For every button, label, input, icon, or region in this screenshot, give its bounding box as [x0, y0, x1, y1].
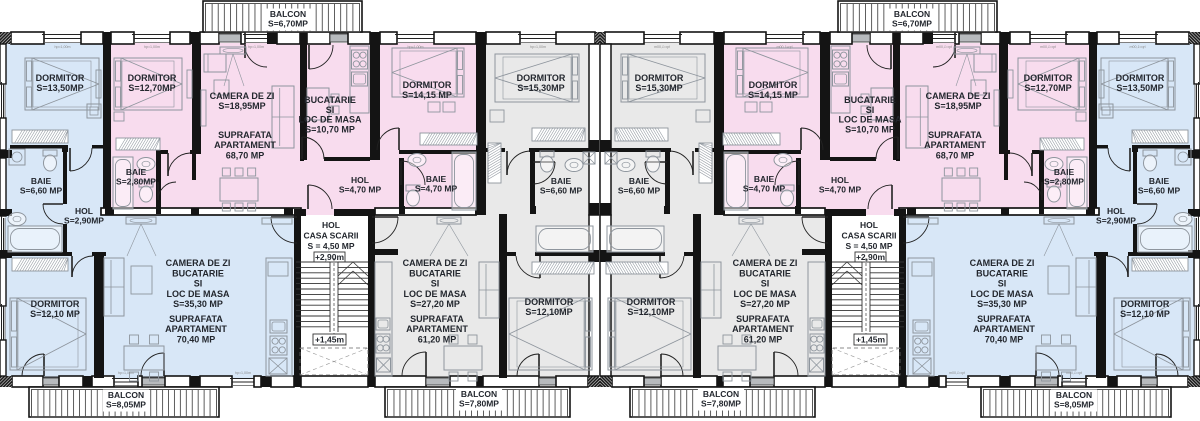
svg-text:hp=1,00m: hp=1,00m [248, 45, 264, 49]
svg-text:hp=1,00m: hp=1,00m [654, 45, 670, 49]
svg-text:S=6,70MP: S=6,70MP [892, 19, 932, 29]
svg-text:CASA SCARII: CASA SCARII [304, 231, 359, 241]
svg-text:CAMERA DE ZI: CAMERA DE ZI [166, 258, 231, 268]
svg-text:S=6,60 MP: S=6,60 MP [540, 186, 583, 196]
svg-text:S=12,10MP: S=12,10MP [525, 307, 572, 317]
svg-text:61,20 MP: 61,20 MP [744, 334, 783, 344]
svg-text:CAMERA DE ZI: CAMERA DE ZI [733, 258, 798, 268]
svg-text:S=4,70 MP: S=4,70 MP [819, 185, 862, 195]
svg-text:hp=1,00m: hp=1,00m [949, 371, 965, 375]
svg-text:LOC DE MASA: LOC DE MASA [299, 115, 363, 125]
svg-text:S = 4,50 MP: S = 4,50 MP [845, 241, 892, 251]
svg-text:LOC DE MASA: LOC DE MASA [839, 115, 903, 125]
svg-text:HOL: HOL [75, 206, 93, 216]
svg-text:S=4,70 MP: S=4,70 MP [743, 184, 786, 194]
svg-text:BALCON: BALCON [894, 9, 930, 19]
svg-text:S=2,90MP: S=2,90MP [64, 216, 104, 226]
svg-text:DORMITOR: DORMITOR [128, 73, 177, 83]
svg-text:DORMITOR: DORMITOR [1024, 73, 1073, 83]
svg-text:SI: SI [998, 279, 1007, 289]
svg-text:S=6,60 MP: S=6,60 MP [20, 186, 63, 196]
svg-text:APARTAMENT: APARTAMENT [165, 324, 227, 334]
svg-text:S=13,50MP: S=13,50MP [1116, 83, 1163, 93]
svg-text:S=12,10 MP: S=12,10 MP [1120, 309, 1170, 319]
svg-text:hp=1,00m: hp=1,00m [1040, 45, 1056, 49]
svg-text:CAMERA DE ZI: CAMERA DE ZI [926, 91, 991, 101]
svg-text:68,70 MP: 68,70 MP [226, 150, 265, 160]
svg-text:S=2,90MP: S=2,90MP [1096, 216, 1136, 226]
svg-text:S=10,70 MP: S=10,70 MP [845, 124, 895, 134]
svg-text:BAIE: BAIE [126, 167, 147, 177]
svg-text:APARTAMENT: APARTAMENT [973, 324, 1035, 334]
svg-text:S=12,70MP: S=12,70MP [1024, 83, 1071, 93]
svg-text:BUCATARIE: BUCATARIE [304, 95, 356, 105]
svg-text:DORMITOR: DORMITOR [36, 73, 85, 83]
svg-text:S=35,30 MP: S=35,30 MP [977, 299, 1027, 309]
svg-text:S=18,95MP: S=18,95MP [934, 101, 981, 111]
svg-text:APARTAMENT: APARTAMENT [732, 324, 794, 334]
svg-text:S=15,30MP: S=15,30MP [517, 83, 564, 93]
svg-text:hp=1,00m: hp=1,00m [235, 371, 251, 375]
svg-text:S=2,80MP: S=2,80MP [116, 177, 156, 187]
svg-text:S=8,05MP: S=8,05MP [1054, 400, 1094, 410]
svg-text:HOL: HOL [1107, 206, 1125, 216]
svg-text:61,20 MP: 61,20 MP [418, 334, 457, 344]
svg-text:SI: SI [326, 105, 335, 115]
svg-text:BALCON: BALCON [108, 390, 144, 400]
svg-text:BAIE: BAIE [426, 174, 447, 184]
svg-text:S=35,30 MP: S=35,30 MP [173, 299, 223, 309]
svg-text:HOL: HOL [860, 220, 878, 230]
svg-text:S=4,70 MP: S=4,70 MP [415, 184, 458, 194]
svg-text:CAMERA DE ZI: CAMERA DE ZI [210, 91, 275, 101]
svg-text:BUCATARIE: BUCATARIE [409, 268, 461, 278]
svg-text:LOC DE MASA: LOC DE MASA [167, 289, 231, 299]
svg-text:SI: SI [194, 279, 203, 289]
svg-text:SI: SI [761, 279, 770, 289]
svg-text:SUPRAFATA: SUPRAFATA [977, 314, 1031, 324]
svg-text:APARTAMENT: APARTAMENT [406, 324, 468, 334]
svg-text:DORMITOR: DORMITOR [1121, 299, 1170, 309]
svg-text:SUPRAFATA: SUPRAFATA [169, 314, 223, 324]
svg-text:S=12,70MP: S=12,70MP [128, 83, 175, 93]
svg-text:S=14,15 MP: S=14,15 MP [402, 90, 452, 100]
svg-text:S=2,80MP: S=2,80MP [1044, 177, 1084, 187]
svg-text:S=4,70 MP: S=4,70 MP [339, 185, 382, 195]
svg-text:S=8,05MP: S=8,05MP [106, 400, 146, 410]
svg-text:DORMITOR: DORMITOR [517, 73, 566, 83]
svg-text:70,40 MP: 70,40 MP [177, 334, 216, 344]
svg-text:BAIE: BAIE [31, 176, 52, 186]
svg-text:hp=1,00m: hp=1,00m [1129, 45, 1145, 49]
svg-text:+2,90m: +2,90m [856, 252, 886, 262]
svg-text:S=27,20 MP: S=27,20 MP [410, 299, 460, 309]
svg-text:HOL: HOL [831, 175, 849, 185]
svg-text:68,70 MP: 68,70 MP [936, 150, 975, 160]
svg-text:LOC DE MASA: LOC DE MASA [971, 289, 1035, 299]
svg-text:BUCATARIE: BUCATARIE [844, 95, 896, 105]
svg-text:S=6,60 MP: S=6,60 MP [1138, 186, 1181, 196]
svg-text:S=14,15 MP: S=14,15 MP [748, 90, 798, 100]
svg-text:S=18,95MP: S=18,95MP [218, 101, 265, 111]
svg-text:BUCATARIE: BUCATARIE [172, 268, 224, 278]
svg-text:S=7,80MP: S=7,80MP [701, 399, 741, 409]
svg-text:SUPRAFATA: SUPRAFATA [928, 130, 982, 140]
svg-text:+1,45m: +1,45m [856, 335, 886, 345]
svg-text:hp=1,00m: hp=1,00m [144, 45, 160, 49]
svg-text:DORMITOR: DORMITOR [635, 73, 684, 83]
svg-text:S=7,80MP: S=7,80MP [459, 399, 499, 409]
svg-text:CAMERA DE ZI: CAMERA DE ZI [403, 258, 468, 268]
svg-text:SUPRAFATA: SUPRAFATA [410, 314, 464, 324]
svg-text:BUCATARIE: BUCATARIE [739, 268, 791, 278]
svg-text:BAIE: BAIE [551, 176, 572, 186]
svg-text:S = 4,50 MP: S = 4,50 MP [307, 241, 354, 251]
svg-text:DORMITOR: DORMITOR [31, 299, 80, 309]
svg-text:BALCON: BALCON [1056, 390, 1092, 400]
svg-text:BALCON: BALCON [461, 389, 497, 399]
svg-text:SUPRAFATA: SUPRAFATA [218, 130, 272, 140]
svg-text:hp=1,00m: hp=1,00m [936, 45, 952, 49]
svg-text:S=6,60 MP: S=6,60 MP [618, 186, 661, 196]
svg-text:SI: SI [866, 105, 875, 115]
svg-text:LOC DE MASA: LOC DE MASA [404, 289, 468, 299]
svg-text:SI: SI [431, 279, 440, 289]
svg-text:DORMITOR: DORMITOR [1116, 73, 1165, 83]
svg-text:DORMITOR: DORMITOR [749, 80, 798, 90]
svg-text:S=10,70 MP: S=10,70 MP [305, 124, 355, 134]
svg-text:LOC DE MASA: LOC DE MASA [734, 289, 798, 299]
svg-text:+2,90m: +2,90m [315, 252, 345, 262]
svg-text:S=27,20 MP: S=27,20 MP [740, 299, 790, 309]
svg-text:BALCON: BALCON [270, 9, 306, 19]
svg-text:BAIE: BAIE [1054, 167, 1075, 177]
svg-text:BAIE: BAIE [754, 174, 775, 184]
svg-text:SUPRAFATA: SUPRAFATA [736, 314, 790, 324]
svg-text:BAIE: BAIE [629, 176, 650, 186]
svg-text:hp=1,00m: hp=1,00m [54, 45, 70, 49]
svg-text:S=12,10MP: S=12,10MP [627, 307, 674, 317]
svg-text:DORMITOR: DORMITOR [525, 297, 574, 307]
svg-text:BUCATARIE: BUCATARIE [976, 268, 1028, 278]
svg-text:+1,45m: +1,45m [315, 335, 345, 345]
svg-text:CASA SCARII: CASA SCARII [842, 231, 897, 241]
svg-text:S=6,70MP: S=6,70MP [268, 19, 308, 29]
svg-text:DORMITOR: DORMITOR [627, 297, 676, 307]
svg-text:APARTAMENT: APARTAMENT [924, 140, 986, 150]
svg-text:HOL: HOL [351, 175, 369, 185]
svg-text:BALCON: BALCON [703, 389, 739, 399]
svg-text:DORMITOR: DORMITOR [403, 80, 452, 90]
svg-text:S=15,30MP: S=15,30MP [635, 83, 682, 93]
svg-text:S=12,10 MP: S=12,10 MP [30, 309, 80, 319]
svg-text:CAMERA DE ZI: CAMERA DE ZI [970, 258, 1035, 268]
svg-text:S=13,50MP: S=13,50MP [36, 83, 83, 93]
svg-text:hp=1,00m: hp=1,00m [530, 45, 546, 49]
svg-text:HOL: HOL [322, 220, 340, 230]
svg-text:APARTAMENT: APARTAMENT [214, 140, 276, 150]
svg-text:BAIE: BAIE [1149, 176, 1170, 186]
svg-text:70,40 MP: 70,40 MP [985, 334, 1024, 344]
